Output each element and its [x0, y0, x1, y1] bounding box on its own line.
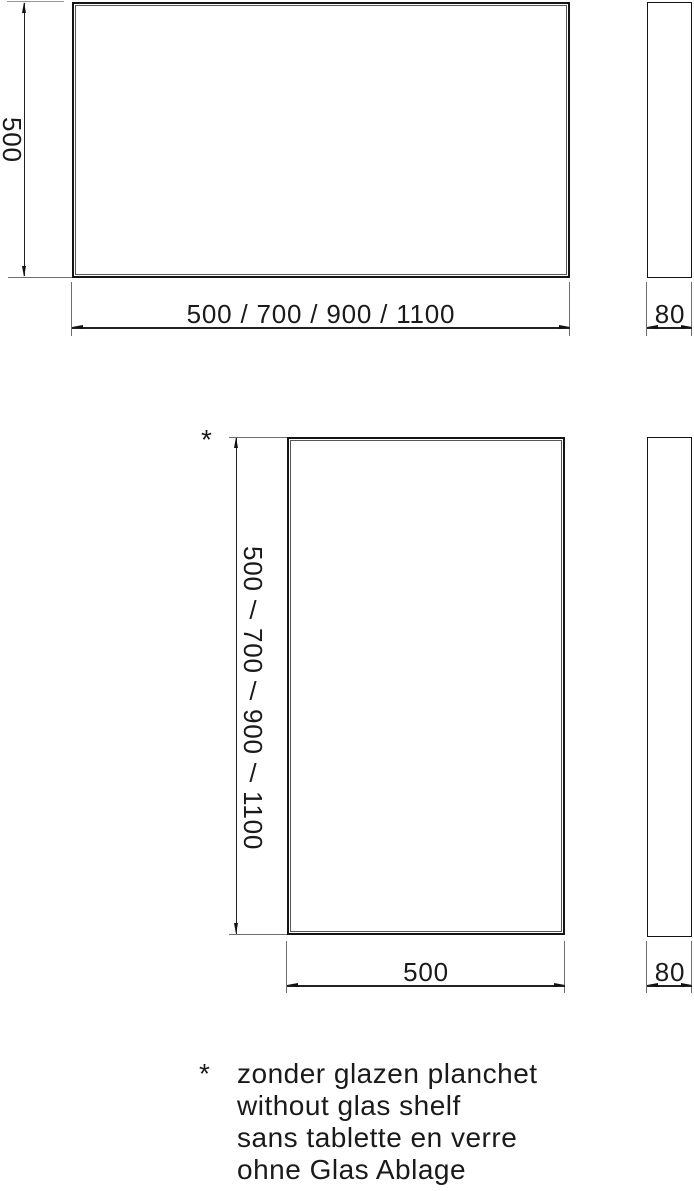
depth-dimension-label: 80	[640, 959, 694, 986]
height-dimension-label: 500	[0, 60, 25, 220]
arrow-up-icon	[234, 437, 238, 448]
technical-drawing-canvas: 500 500 / 700 / 900 / 1100 80 * 500 / 70…	[0, 0, 694, 1191]
footnote-line-en: without glas shelf	[237, 1090, 538, 1122]
extension-line	[7, 1, 64, 2]
footnote-line-de: ohne Glas Ablage	[237, 1154, 538, 1186]
height-dimension-label: 500 / 700 / 900 / 1100	[240, 543, 266, 853]
height-dimension-line	[236, 438, 237, 934]
footnote: zonder glazen planchet without glas shel…	[237, 1058, 538, 1186]
front-view-portrait-rect	[287, 437, 565, 935]
arrow-down-icon	[234, 923, 238, 934]
height-value: 500	[0, 117, 25, 163]
separator: /	[249, 678, 256, 704]
separator: /	[249, 760, 256, 786]
height-value: 700	[240, 628, 266, 674]
mirror-inner-edge-line	[290, 440, 562, 932]
depth-dimension-label: 80	[640, 301, 694, 328]
mirror-inner-edge-line	[75, 5, 567, 275]
footnote-marker: *	[199, 1058, 210, 1090]
front-view-landscape-rect	[72, 2, 570, 278]
arrow-down-icon	[22, 266, 26, 277]
arrow-up-icon	[22, 2, 26, 13]
height-value: 1100	[240, 791, 266, 850]
height-value: 900	[240, 709, 266, 755]
width-dimension-label: 500	[287, 959, 565, 986]
footnote-line-fr: sans tablette en verre	[237, 1122, 538, 1154]
width-dimension-label: 500 / 700 / 900 / 1100	[72, 301, 570, 328]
side-view-landscape-rect	[647, 2, 692, 278]
side-view-portrait-rect	[647, 437, 692, 937]
height-value: 500	[240, 546, 266, 592]
footnote-line-nl: zonder glazen planchet	[237, 1058, 538, 1090]
separator: /	[249, 597, 256, 623]
extension-line	[229, 934, 287, 935]
extension-line	[8, 277, 72, 278]
footnote-marker: *	[201, 424, 212, 456]
